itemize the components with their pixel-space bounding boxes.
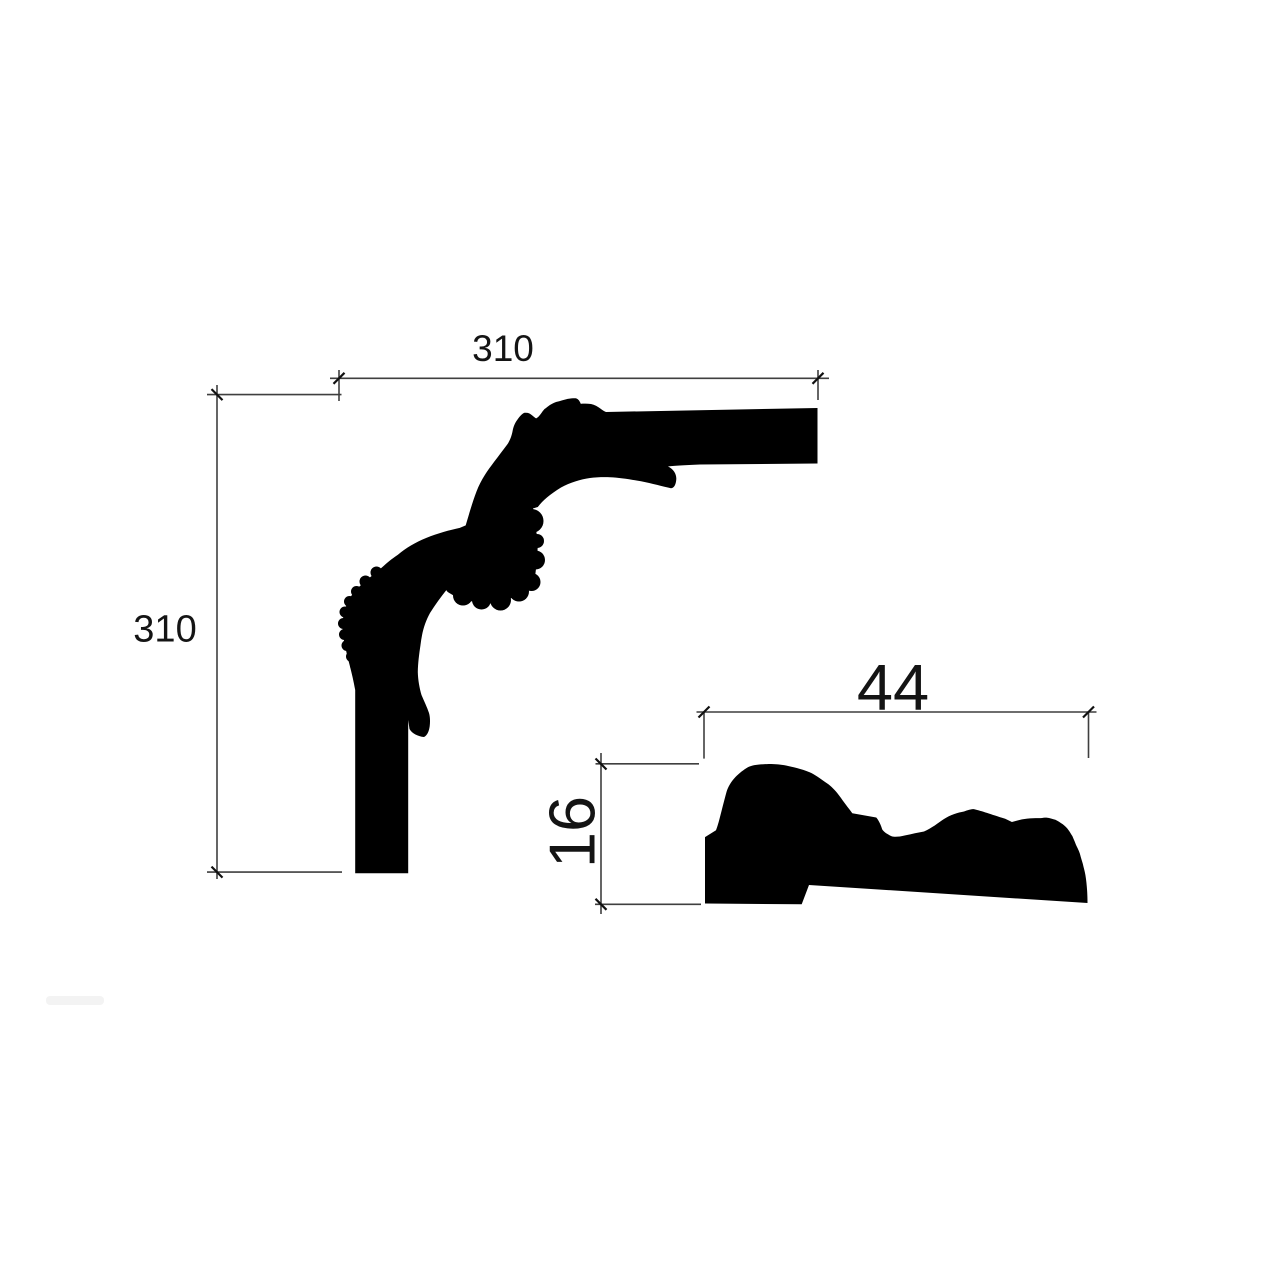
svg-text:310: 310: [472, 328, 534, 369]
svg-text:44: 44: [857, 651, 929, 724]
svg-text:16: 16: [536, 796, 609, 868]
svg-text:310: 310: [133, 609, 196, 651]
